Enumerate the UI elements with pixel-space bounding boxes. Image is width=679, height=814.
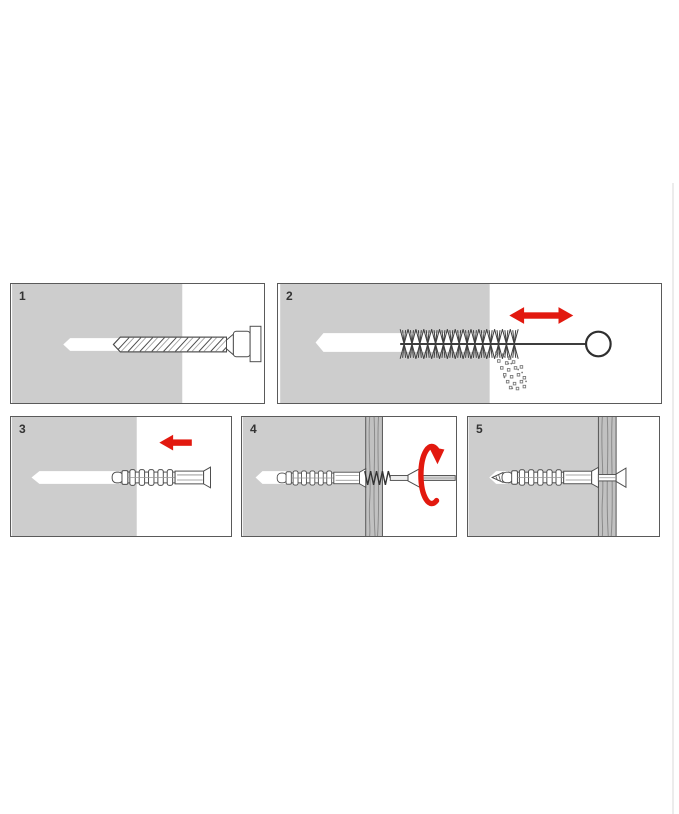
step-number-2: 2 [286,289,293,303]
left-arrow-icon [159,435,191,451]
screwdriver-shaft [423,476,455,481]
double-arrow-icon [509,307,573,324]
step-number-3: 3 [19,422,26,436]
step-panel-1: 1 [10,283,265,404]
rotation-arrow-icon [421,447,444,504]
drill-chuck-icon [227,326,261,361]
step-panel-3: 3 [10,416,232,537]
instruction-diagram-page: 1 [0,0,679,814]
wall-anchor-icon [112,467,210,488]
step-panel-2: 2 [277,283,662,404]
step-number-5: 5 [476,422,483,436]
page-divider [672,183,674,814]
step-number-4: 4 [250,422,257,436]
finished-installation-illustration [468,417,659,536]
step-number-1: 1 [19,289,26,303]
drill-bit-illustration [11,284,264,403]
step-panel-5: 5 [467,416,660,537]
wooden-batten [366,417,383,536]
screw-driving-illustration [242,417,456,536]
step-panel-4: 4 [241,416,457,537]
anchor-insert-illustration [11,417,231,536]
brush-cleaning-illustration [278,284,661,403]
